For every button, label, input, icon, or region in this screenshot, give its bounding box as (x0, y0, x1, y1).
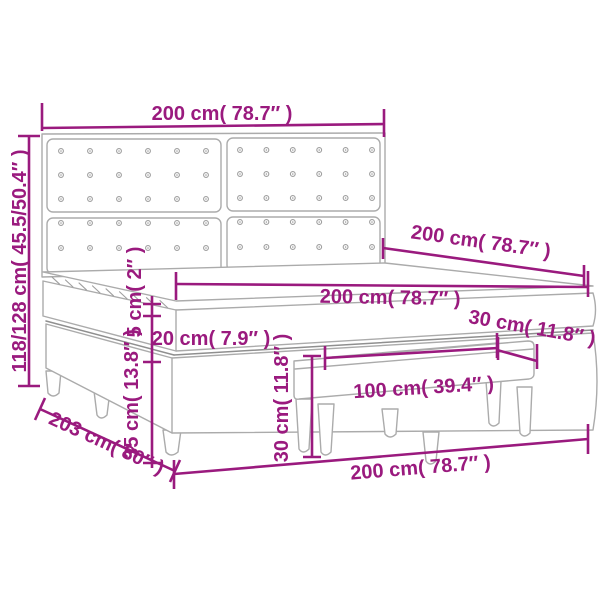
headboard-panel-bottom-right (227, 217, 380, 271)
dim-label-mattress-height: 20 cm( 7.9″ ) (152, 328, 271, 350)
dim-label-bench-height: 30 cm( 11.8″ ) (271, 334, 293, 463)
bed-leg (163, 430, 181, 455)
headboard-panel-top-right (227, 138, 380, 211)
bed-dimension-diagram: 200 cm( 78.7″ ) 118/128 cm( 45.5/50.4″ )… (0, 0, 600, 600)
dim-label-mattress-width: 200 cm( 78.7″ ) (320, 286, 461, 310)
bench-leg (517, 387, 532, 436)
headboard-panel-top-left (47, 139, 221, 212)
dim-label-headboard-height: 118/128 cm( 45.5/50.4″ ) (9, 149, 31, 372)
dim-label-headboard-width: 200 cm( 78.7″ ) (152, 103, 293, 125)
bench-leg (296, 399, 312, 452)
dim-label-topper-height: 5 cm( 2″ ) (124, 247, 146, 338)
dim-label-bed-length-top: 200 cm( 78.7″ ) (410, 221, 552, 262)
diagram-canvas: 200 cm( 78.7″ ) 118/128 cm( 45.5/50.4″ )… (0, 0, 600, 600)
bench-leg (382, 409, 398, 437)
bench-leg (318, 404, 334, 455)
headboard-outline (42, 133, 385, 277)
